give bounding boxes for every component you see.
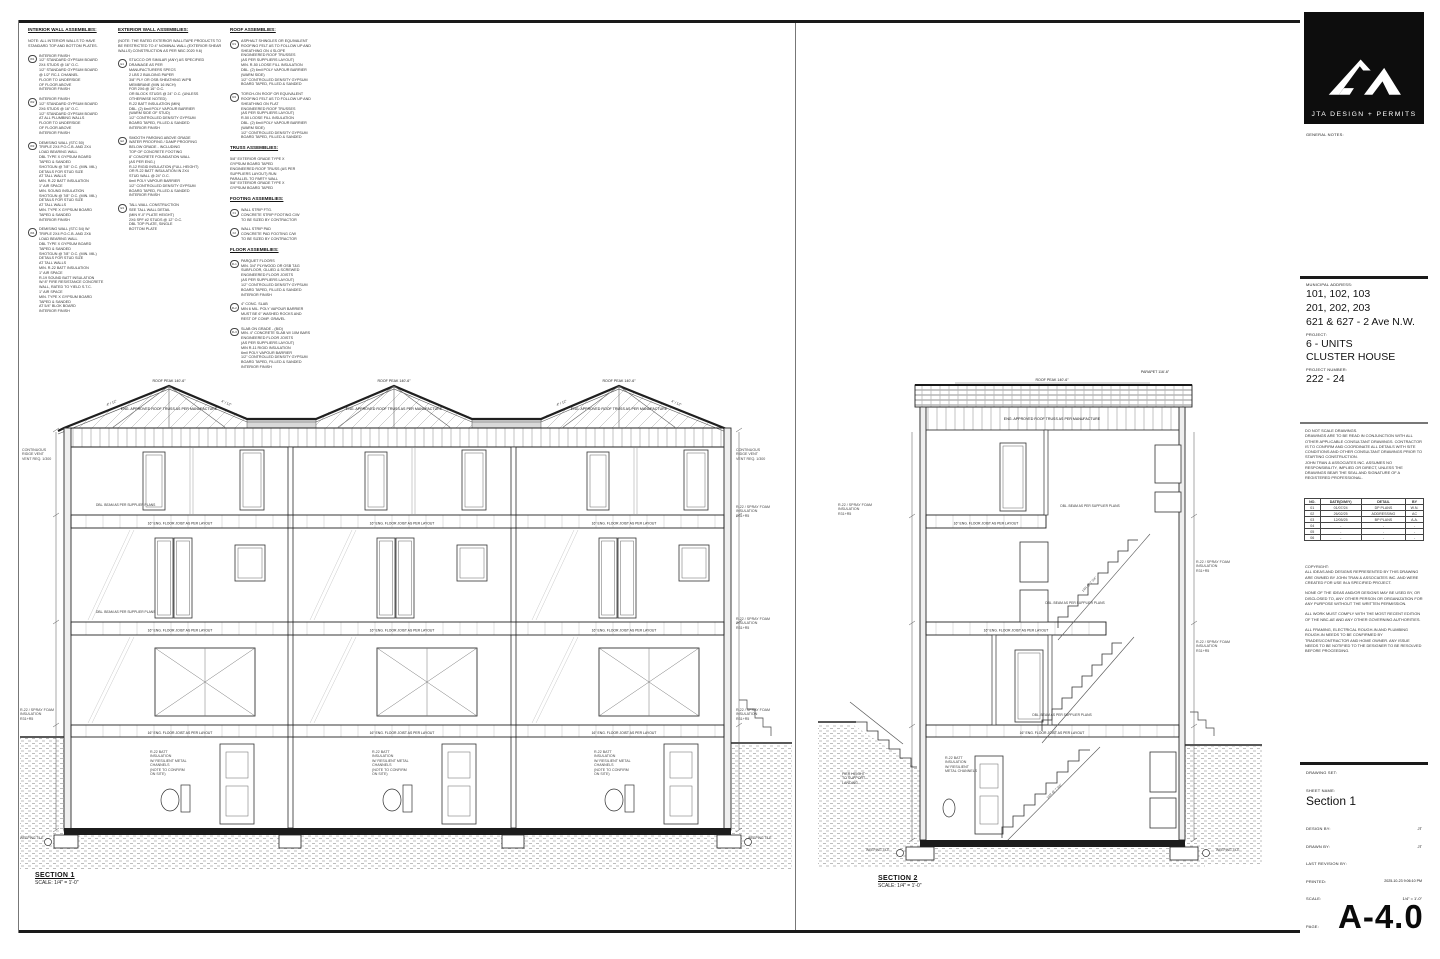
door [1015, 650, 1043, 722]
ridge-vent-note: CONTINUOUS RIDGE VENT VENT REQ. 1/300 [736, 448, 778, 461]
scale-label: SCALE: [1306, 896, 1321, 901]
exterior-steps-right [1190, 712, 1214, 736]
address-line: 101, 102, 103 [1306, 288, 1370, 301]
titleblock-rule [1300, 422, 1428, 424]
printed-value: 2025-10-23 9:06:10 PM [1384, 879, 1422, 884]
footing [54, 835, 78, 848]
section1-title-block: SECTION 1 SCALE: 1/4" = 1'-0" [35, 872, 79, 886]
footing [502, 835, 524, 848]
logo-mark-icon [1322, 47, 1406, 109]
ridge-vent-note: CONTINUOUS RIDGE VENT VENT REQ. 1/300 [22, 448, 62, 461]
stair-note: 14R @ 7 3/4" [1046, 782, 1064, 799]
window [1150, 798, 1176, 828]
slope-label: 4" / 12" [671, 399, 683, 407]
spray-foam-note: R-22 / SPRAY FOAM INSULATION R31+R5 [1196, 560, 1238, 573]
sheet-number: A-4.0 [1338, 898, 1424, 936]
section1-drawing: 16" ENG. FLOOR JOIST AS PER LAYOUT 16" E… [18, 330, 795, 930]
drawn-by-label: DRAWN BY: [1306, 844, 1330, 849]
beam-label: DBL. BEAM AS PER SUPPLIER PLANS [96, 503, 156, 507]
municipal-address-label: MUNICIPAL ADDRESS: [1306, 282, 1352, 287]
slope-label: 4" / 12" [221, 399, 233, 407]
logo-text: JTA DESIGN + PERMITS [1311, 111, 1416, 118]
footing [1170, 847, 1198, 860]
stair-flight-upper [1058, 540, 1138, 628]
general-notes-label: GENERAL NOTES: [1306, 132, 1344, 137]
project-number: 222 - 24 [1306, 373, 1345, 386]
truss-label: ENG. APPROVED ROOF TRUSS AS PER MANUFACT… [346, 407, 443, 411]
design-by-row: DESIGN BY: JT [1306, 826, 1422, 831]
weeping-tile-label: WEEPING TILE [866, 848, 902, 852]
weeping-tile-label: WEEPING TILE [20, 836, 56, 840]
address-line: 201, 202, 203 [1306, 302, 1370, 315]
flat-roof-strip [247, 419, 316, 428]
truss-band [64, 428, 731, 447]
copyright-text: COPYRIGHT: ALL IDEAS AND DESIGNS REPRESE… [1305, 564, 1423, 654]
footing [279, 835, 301, 848]
spray-foam-note: R-22 / SPRAY FOAM INSULATION R31+R5 [736, 617, 778, 630]
design-by-value: JT [1418, 826, 1422, 831]
notes-column-interior-walls: INTERIOR WALL ASSEMBLIES:NOTE: ALL INTER… [28, 27, 116, 319]
earth-hatch-bottom [905, 846, 1205, 868]
drawing-sheet: INTERIOR WALL ASSEMBLIES:NOTE: ALL INTER… [0, 0, 1440, 959]
section2-scale: SCALE: 1/4" = 1'-0" [878, 883, 922, 889]
window [1020, 590, 1048, 622]
printed-label: PRINTED: [1306, 879, 1326, 884]
spray-foam-note: R-22 / SPRAY FOAM INSULATION R31+R5 [838, 503, 880, 516]
printed-row: PRINTED: 2025-10-23 9:06:10 PM [1306, 879, 1422, 884]
basement-insulation-note: R-22 BATT INSULATION W/ RESILIENT METAL … [372, 750, 434, 777]
floor-joist-label: 16" ENG. FLOOR JOIST AS PER LAYOUT [954, 522, 1019, 526]
company-logo: JTA DESIGN + PERMITS [1304, 12, 1424, 124]
project-number-label: PROJECT NUMBER: [1306, 367, 1347, 372]
section1-scale: SCALE: 1/4" = 1'-0" [35, 880, 79, 886]
exterior-wall-left [64, 428, 71, 830]
slab [920, 840, 1185, 847]
footing [906, 847, 934, 860]
panel-divider [795, 23, 796, 930]
exterior-wall-right [724, 428, 731, 830]
weeping-tile [1203, 850, 1210, 857]
window [1150, 752, 1176, 792]
earth-hatch-bottom [20, 835, 792, 870]
beam-label: DBL. BEAM AS PER SUPPLIER PLANS [96, 610, 156, 614]
titleblock-rule [1300, 276, 1428, 279]
spray-foam-note: R-22 / SPRAY FOAM INSULATION R31+R5 [20, 708, 62, 721]
interior-wall [1048, 635, 1052, 725]
sheet-name-label: SHEET NAME: [1306, 788, 1335, 793]
floor-joist-label: 16" ENG. FLOOR JOIST AS PER LAYOUT [984, 629, 1049, 633]
drawn-by-row: DRAWN BY: JT [1306, 844, 1422, 849]
truss-label: ENG. APPROVED ROOF TRUSS AS PER MANUFACT… [1004, 417, 1101, 421]
window [1155, 445, 1181, 483]
basement-insulation-note: R-22 BATT INSULATION W/ RESILIENT METAL … [945, 756, 1000, 774]
revision-row: 06--- [1305, 535, 1424, 541]
roof-peak-label: ROOF PEAK 140'-6" [152, 379, 186, 383]
beam-label: DBL. BEAM AS PER SUPPLIER PLANS [1045, 601, 1105, 605]
frame-top [18, 20, 1428, 23]
exterior-wall-left [920, 407, 926, 840]
window [1155, 492, 1181, 512]
flat-roof-strip [472, 419, 541, 428]
parapet-band [915, 385, 1192, 407]
slab [64, 828, 731, 835]
parapet-label: PARAPET 116'-6" [1141, 370, 1170, 374]
page-label: PAGE: [1306, 924, 1319, 929]
section2-title: SECTION 2 [878, 875, 922, 882]
frame-bottom [18, 930, 1428, 933]
beam-label: DBL. BEAM AS PER SUPPLIER PLANS [1032, 713, 1092, 717]
window [1020, 542, 1048, 582]
interior-wall [1044, 430, 1048, 515]
spray-foam-note: R-22 / SPRAY FOAM INSULATION R31+R5 [736, 708, 778, 721]
basement-insulation-note: R-22 BATT INSULATION W/ RESILIENT METAL … [150, 750, 212, 777]
notes-column-roof-floor: ROOF ASSEMBLIES:R1ASPHALT SHINGLES OR EQ… [230, 27, 335, 375]
beam-label: DBL. BEAM AS PER SUPPLIER PLANS [1060, 504, 1120, 508]
stair-flight-basement [1002, 750, 1090, 838]
spray-foam-note: R-22 / SPRAY FOAM INSULATION R31+R5 [1196, 640, 1238, 653]
design-by-label: DESIGN BY: [1306, 826, 1331, 831]
party-wall [511, 447, 516, 828]
slope-label: 4" / 12" [106, 399, 118, 407]
door [1000, 443, 1026, 511]
title-block: JTA DESIGN + PERMITS GENERAL NOTES: MUNI… [1300, 20, 1428, 934]
project-line: CLUSTER HOUSE [1306, 351, 1395, 364]
party-wall [288, 447, 293, 828]
disclaimer-text: DO NOT SCALE DRAWINGS. DRAWINGS ARE TO B… [1305, 428, 1423, 481]
roof-peak-label: ROOF PEAK 140'-6" [377, 379, 411, 383]
section2-title-block: SECTION 2 SCALE: 1/4" = 1'-0" [878, 875, 922, 889]
truss-label: ENG. APPROVED ROOF TRUSS AS PER MANUFACT… [571, 407, 668, 411]
section2-drawing: ROOF PEAK 140'-6" PARAPET 116'-6" ENG. A… [800, 330, 1300, 930]
project-label: PROJECT: [1306, 332, 1327, 337]
footing [717, 835, 741, 848]
drawn-by-value: JT [1418, 844, 1422, 849]
revision-table: NO. DATE(D/M/Y) DETAIL BY 0101/07/24DP P… [1304, 498, 1424, 541]
roof-peak-label: ROOF PEAK 140'-6" [602, 379, 636, 383]
roof-peak-label: ROOF PEAK 140'-6" [1035, 378, 1069, 382]
stair-flight-mid [1042, 643, 1122, 731]
slope-label: 4" / 12" [556, 399, 568, 407]
weeping-tile-label: WEEPING TILE [748, 836, 784, 840]
interior-wall [992, 635, 996, 725]
last-revision-row: LAST REVISION BY: [1306, 861, 1422, 866]
spray-foam-note: R-22 / SPRAY FOAM INSULATION R31+R5 [736, 505, 778, 518]
address-line: 621 & 627 - 2 Ave N.W. [1306, 316, 1415, 329]
project-line: 6 - UNITS [1306, 338, 1353, 351]
weeping-tile-label: WEEPING TILE [1216, 848, 1252, 852]
section1-title: SECTION 1 [35, 872, 79, 879]
grade-line [20, 737, 792, 743]
basement-insulation-note: R-22 BATT INSULATION W/ RESILIENT METAL … [594, 750, 656, 777]
drawing-set-label: DRAWING SET: [1306, 770, 1337, 775]
last-revision-label: LAST REVISION BY: [1306, 861, 1347, 866]
notes-column-exterior-walls: EXTERIOR WALL ASSEMBLIES:(NOTE: THE RATE… [118, 27, 226, 237]
landing-note: PIER HEIGHT TO SUPPORT LANDING [842, 772, 882, 785]
truss-label: ENG. APPROVED ROOF TRUSS AS PER MANUFACT… [121, 407, 218, 411]
titleblock-rule [1300, 762, 1428, 765]
toilet [943, 799, 955, 817]
sheet-name: Section 1 [1306, 794, 1356, 808]
